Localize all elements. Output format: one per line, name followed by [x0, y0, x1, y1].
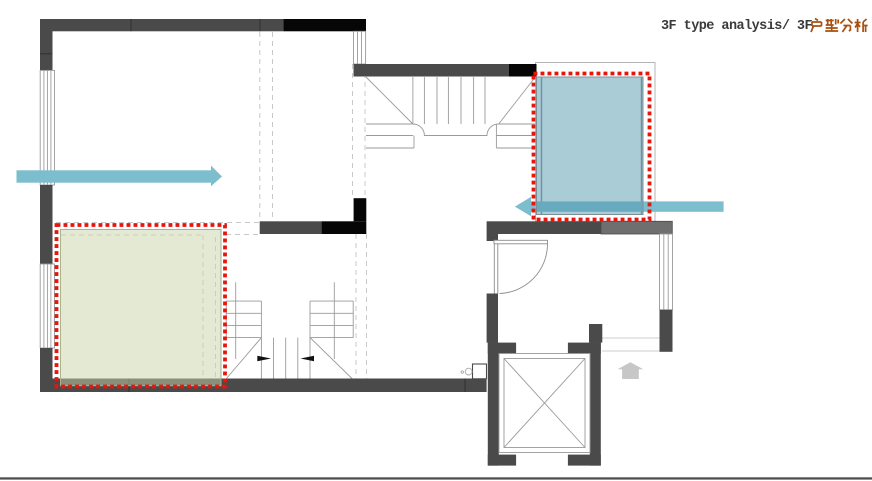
svg-text:3F type analysis/ 3F: 3F type analysis/ 3F: [661, 19, 812, 34]
